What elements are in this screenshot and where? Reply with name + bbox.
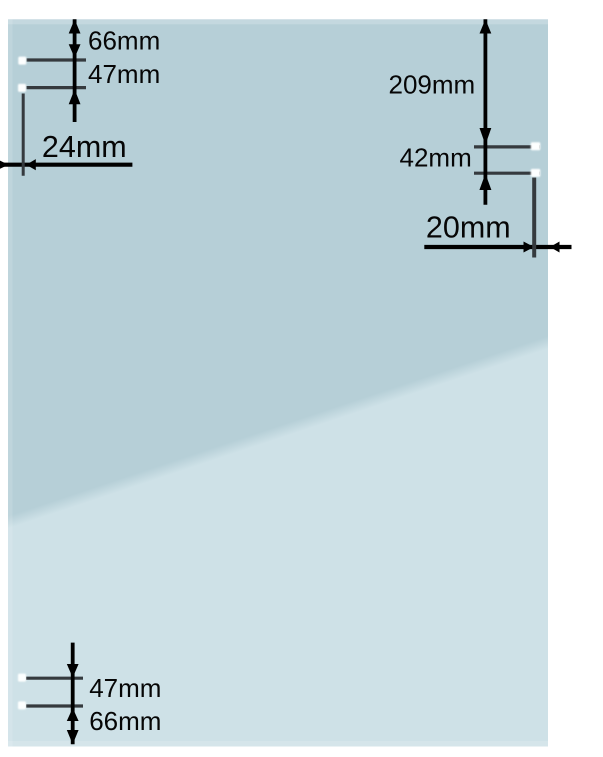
svg-text:20mm: 20mm <box>426 211 511 245</box>
svg-text:24mm: 24mm <box>42 130 127 164</box>
svg-text:209mm: 209mm <box>389 70 476 100</box>
svg-text:66mm: 66mm <box>88 26 160 56</box>
svg-text:47mm: 47mm <box>89 673 161 703</box>
svg-text:66mm: 66mm <box>89 706 161 736</box>
svg-text:47mm: 47mm <box>88 59 160 89</box>
svg-text:42mm: 42mm <box>400 142 472 172</box>
